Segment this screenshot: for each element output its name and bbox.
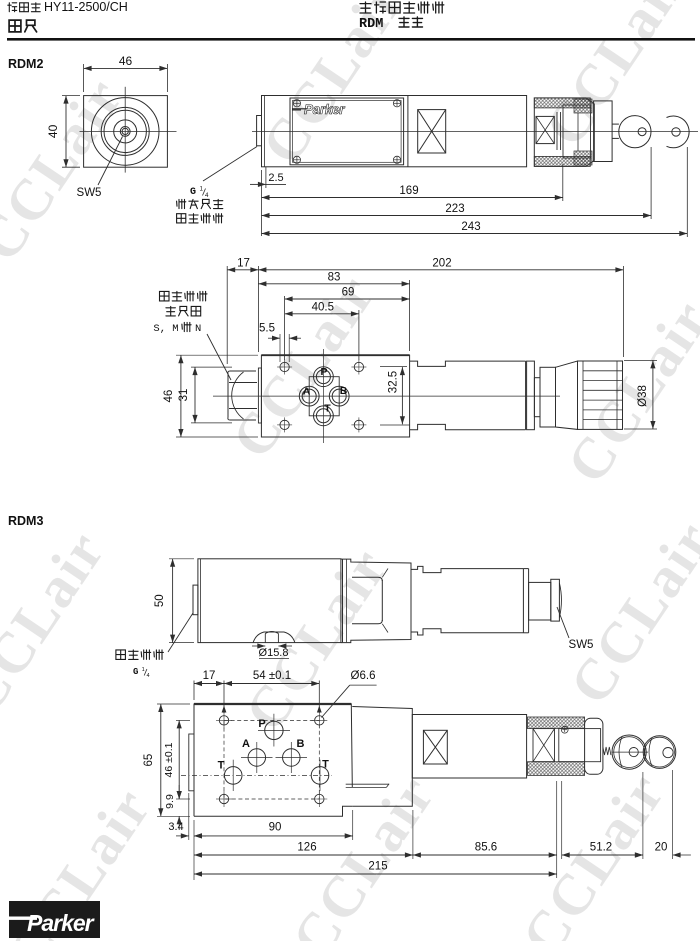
svg-text:4: 4 <box>205 192 209 199</box>
svg-text:17: 17 <box>237 258 250 270</box>
svg-text:P: P <box>320 366 327 378</box>
svg-text:P: P <box>258 718 265 730</box>
svg-text:T: T <box>218 760 225 772</box>
svg-text:4: 4 <box>147 673 150 679</box>
svg-text:RDM: RDM <box>359 17 383 32</box>
svg-text:Ø15.8: Ø15.8 <box>259 647 289 659</box>
svg-text:20: 20 <box>655 842 668 854</box>
svg-text:RDM2: RDM2 <box>8 57 43 71</box>
svg-text:90: 90 <box>269 822 282 834</box>
svg-text:169: 169 <box>399 185 418 197</box>
svg-text:40: 40 <box>46 124 60 138</box>
svg-text:202: 202 <box>432 258 451 270</box>
svg-text:126: 126 <box>297 842 316 854</box>
svg-text:46: 46 <box>119 54 133 68</box>
svg-text:243: 243 <box>461 221 480 233</box>
svg-text:1: 1 <box>142 667 145 673</box>
svg-text:31: 31 <box>178 389 190 402</box>
svg-text:54 ±0.1: 54 ±0.1 <box>253 670 291 682</box>
svg-text:83: 83 <box>328 271 341 283</box>
svg-text:40.5: 40.5 <box>312 301 334 313</box>
svg-text:5.5: 5.5 <box>259 323 275 335</box>
svg-text:46: 46 <box>163 390 175 403</box>
svg-text:N: N <box>195 323 201 335</box>
svg-text:3.4: 3.4 <box>168 821 183 833</box>
svg-text:B: B <box>340 385 348 397</box>
svg-text:Ø38: Ø38 <box>637 385 649 407</box>
svg-text:50: 50 <box>154 594 166 607</box>
svg-text:Ø6.6: Ø6.6 <box>351 670 376 682</box>
svg-text:Parker: Parker <box>304 102 345 117</box>
svg-text:G: G <box>133 667 138 677</box>
svg-text:T: T <box>324 403 331 415</box>
svg-text:85.6: 85.6 <box>475 842 497 854</box>
svg-text:G: G <box>190 187 196 198</box>
svg-text:9.9: 9.9 <box>164 794 176 809</box>
svg-text:Parker: Parker <box>27 910 95 936</box>
svg-text:65: 65 <box>143 754 155 767</box>
svg-text:RDM3: RDM3 <box>8 514 43 528</box>
svg-text:A: A <box>303 386 311 398</box>
svg-text:215: 215 <box>368 861 387 873</box>
svg-text:69: 69 <box>342 287 355 299</box>
svg-text:A: A <box>242 738 250 750</box>
svg-text:2.5: 2.5 <box>268 172 283 184</box>
svg-text:17: 17 <box>203 670 216 682</box>
svg-text:223: 223 <box>445 203 464 215</box>
svg-text:1: 1 <box>200 186 204 193</box>
svg-text:SW5: SW5 <box>77 187 102 199</box>
svg-text:B: B <box>297 738 305 750</box>
svg-text:T: T <box>322 759 329 771</box>
svg-text:S, M: S, M <box>153 323 178 335</box>
svg-text:46 ±0.1: 46 ±0.1 <box>163 742 175 777</box>
svg-text:32.5: 32.5 <box>388 371 400 393</box>
svg-text:51.2: 51.2 <box>590 842 612 854</box>
svg-text:HY11-2500/CH: HY11-2500/CH <box>44 0 128 14</box>
svg-text:SW5: SW5 <box>569 639 594 651</box>
